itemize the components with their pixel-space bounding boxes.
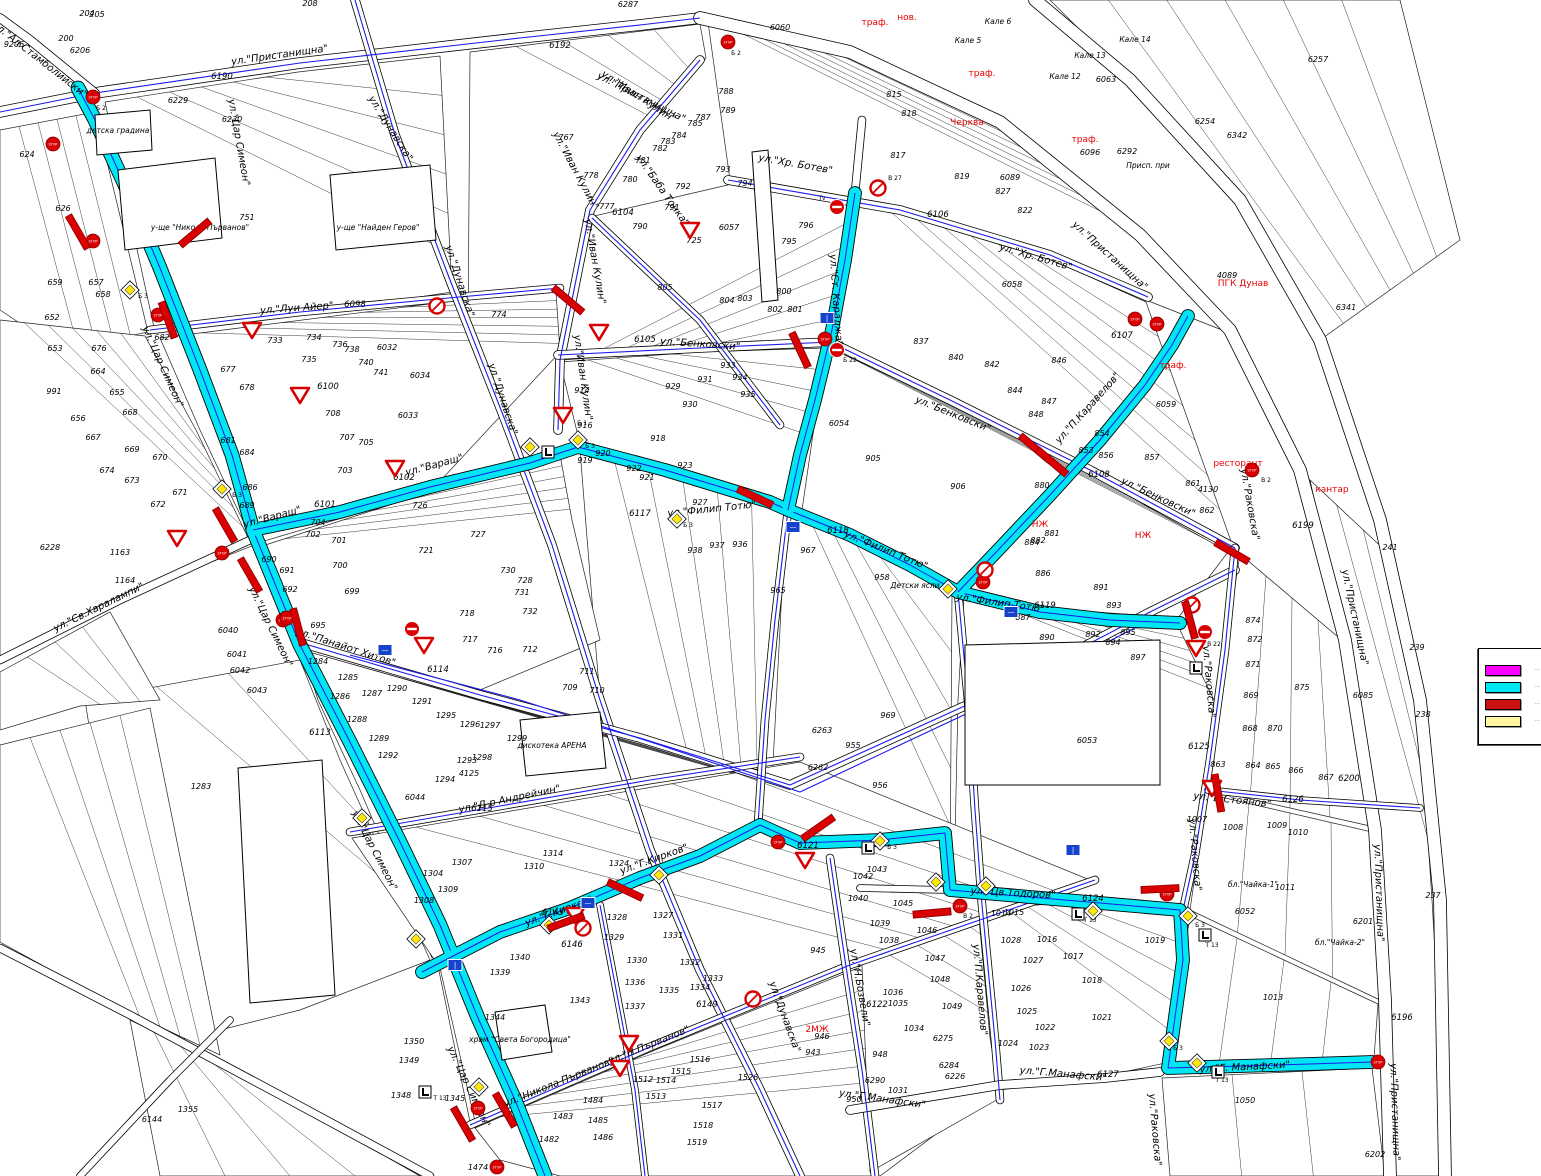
parcel-number: 784 — [671, 131, 686, 140]
parcel-number: 948 — [872, 1050, 887, 1059]
parcel-number: 822 — [1017, 206, 1032, 215]
stop-sign-part: STOP — [493, 1165, 502, 1169]
parcel-number: 1289 — [369, 734, 389, 743]
parcel-number: 1337 — [625, 1002, 646, 1011]
parcel-number: 708 — [325, 409, 340, 418]
parcel-number: 817 — [890, 151, 906, 160]
parcel-number: 1483 — [553, 1112, 573, 1121]
parcel-number: 1021 — [1092, 1013, 1112, 1022]
sign-code-label: В 22 — [1207, 641, 1221, 648]
parcel-number: 1513 — [646, 1092, 666, 1101]
parcel-number: 1016 — [1037, 935, 1057, 944]
parcel-number: 790 — [632, 222, 647, 231]
parcel-number: 891 — [1093, 583, 1108, 592]
parcel-number: 1048 — [930, 975, 950, 984]
stop-sign-icon: STOP — [86, 90, 100, 104]
poi-label-red: НЖ — [1135, 531, 1152, 541]
sign-code-label: Б 3 — [138, 293, 148, 300]
parcel-number: 1010 — [1288, 828, 1308, 837]
parcel-number: 969 — [880, 711, 895, 720]
place-label: Присп. при — [1126, 161, 1170, 170]
parcel-number: 711 — [579, 667, 594, 676]
parcel-number: 6053 — [1077, 736, 1097, 745]
parcel-number: 1008 — [1223, 823, 1243, 832]
parcel-number: 853 — [1078, 446, 1093, 455]
road-code: 6200 — [1338, 774, 1360, 784]
noentry-sign-icon — [830, 343, 845, 358]
parcel-number: 788 — [718, 87, 733, 96]
parcel-number: 1512 — [633, 1075, 653, 1084]
t13-sign-icon — [1212, 1066, 1224, 1078]
parcel-number: 1485 — [588, 1116, 608, 1125]
street-name-label: ул."Раковска" — [1238, 467, 1262, 541]
parcel-number: 865 — [1265, 762, 1280, 771]
parcel-number: 1022 — [1035, 1023, 1055, 1032]
road-code: 6199 — [1292, 521, 1314, 531]
parcel-number: 678 — [239, 383, 254, 392]
parcel-number: 751 — [239, 213, 254, 222]
road-code: 6125 — [1188, 742, 1210, 752]
parcel-number: 793 — [715, 165, 730, 174]
city-block — [982, 902, 1180, 1090]
parcel-number: 787 — [695, 113, 711, 122]
red-marker-swatch — [1485, 699, 1521, 710]
parcel-number: 874 — [1245, 616, 1260, 625]
parcel-number: 673 — [124, 476, 139, 485]
bluesign-sign-icon: | — [1066, 845, 1080, 856]
parcel-number: 803 — [737, 294, 752, 303]
parcel-number: 1034 — [904, 1024, 924, 1033]
parcel-number: 1288 — [347, 715, 367, 724]
noentry-sign-icon — [830, 200, 845, 215]
parcel-number: 699 — [344, 587, 359, 596]
parcel-number: 945 — [810, 946, 825, 955]
parcel-number: 792 — [675, 182, 690, 191]
parcel-number: 6206 — [70, 46, 90, 55]
parcel-number: 1290 — [387, 684, 407, 693]
parcel-number: 827 — [995, 187, 1011, 196]
stop-sign-part: STOP — [89, 95, 98, 99]
parcel-number: 857 — [1144, 453, 1160, 462]
city-block — [130, 1020, 420, 1176]
parcel-number: 238 — [1415, 710, 1430, 719]
parcel-number: 905 — [865, 454, 880, 463]
stop-sign-part: STOP — [49, 142, 58, 146]
poi-label-red: нов. — [897, 13, 917, 23]
parcel-number: 1047 — [925, 954, 946, 963]
parcel-number: 856 — [1098, 451, 1113, 460]
parcel-number: 1039 — [870, 919, 890, 928]
t13-sign-part — [419, 1086, 431, 1098]
road-code: 6117 — [629, 509, 651, 519]
parcel-number: 658 — [95, 290, 110, 299]
sign-code-label: Б 3 — [1173, 1045, 1183, 1052]
parcel-number: 1329 — [604, 933, 624, 942]
parcel-number: 794 — [737, 179, 752, 188]
parcel-number: 1330 — [627, 956, 647, 965]
parcel-number: 1482 — [539, 1135, 559, 1144]
parcel-number: 668 — [122, 408, 137, 417]
parcel-number: 6226 — [945, 1072, 965, 1081]
parcel-number: 241 — [1382, 543, 1397, 552]
parcel-number: 802 — [767, 305, 782, 314]
parcel-number: 1314 — [543, 849, 563, 858]
t13-sign-part — [1072, 908, 1084, 920]
road-code: 6126 — [1282, 795, 1304, 805]
parcel-number: 1332 — [680, 958, 700, 967]
parcel-number: 6057 — [719, 223, 740, 232]
map-legend: ·· ···· ····· ··············· ··········… — [1478, 648, 1541, 745]
nostop-sign-icon — [746, 992, 761, 1007]
parcel-number: 6042 — [230, 666, 250, 675]
parcel-number: 653 — [47, 344, 62, 353]
legend-item-label: ············· — [1535, 667, 1541, 674]
parcel-number: 846 — [1051, 356, 1066, 365]
parcel-number: 702 — [305, 530, 320, 539]
t13-sign-icon — [862, 842, 874, 854]
stop-sign-icon: STOP — [1245, 463, 1259, 477]
parcel-number: 930 — [682, 400, 697, 409]
parcel-number: 1308 — [414, 896, 434, 905]
parcel-number: 667 — [85, 433, 101, 442]
parcel-number: 656 — [70, 414, 85, 423]
bluesign-sign-part: — — [790, 524, 797, 532]
parcel-number: 923 — [677, 461, 692, 470]
parcel-number: 1343 — [570, 996, 590, 1005]
stop-sign-part: STOP — [1153, 322, 1162, 326]
parcel-number: 741 — [373, 368, 388, 377]
place-label: Кале 12 — [1049, 72, 1080, 81]
parcel-number: 1042 — [853, 872, 873, 881]
parcel-number: 1045 — [893, 899, 913, 908]
parcel-number: 705 — [358, 438, 373, 447]
sign-code-label: Т 13 — [432, 1095, 446, 1102]
bluesign-sign-part: — — [382, 647, 389, 655]
parcel-number: 862 — [1199, 506, 1214, 515]
parcel-number: 200 — [58, 34, 73, 43]
parcel-number: 815 — [886, 90, 901, 99]
parcel-number: 208 — [302, 0, 317, 8]
parcel-number: 897 — [1130, 653, 1146, 662]
parcel-number: 6085 — [1353, 691, 1373, 700]
stop-sign-icon: STOP — [215, 546, 229, 560]
map-sheet: 9206200620620420520862306229751624626659… — [0, 0, 1541, 1176]
t13-sign-part — [1199, 929, 1211, 941]
sign-code-label: Б 3 — [887, 844, 897, 851]
parcel-number: 848 — [1028, 410, 1043, 419]
parcel-number: 1025 — [1017, 1007, 1037, 1016]
t13-sign-icon — [1190, 662, 1202, 674]
legend-rows: ··············· ·········· ········· ···… — [1485, 662, 1541, 730]
nostop-sign-icon — [430, 299, 445, 314]
parcel-number: 1046 — [917, 926, 937, 935]
parcel-number: 1283 — [191, 782, 211, 791]
sign-code-label: Б 3 — [232, 492, 242, 499]
parcel-number: 6052 — [1235, 907, 1255, 916]
parcel-number: 965 — [770, 586, 785, 595]
parcel-number: 895 — [1120, 628, 1135, 637]
road-code: 6121 — [797, 841, 819, 851]
parcel-number: 943 — [805, 1048, 820, 1057]
parcel-number: 735 — [301, 355, 316, 364]
place-label: у-ще "Найден Геров" — [336, 223, 420, 232]
parcel-number: 6044 — [405, 793, 425, 802]
parcel-number: 6063 — [1096, 75, 1116, 84]
t13-sign-icon — [1072, 908, 1084, 920]
parcel-number: 875 — [1294, 683, 1309, 692]
parcel-number: 1344 — [485, 1013, 505, 1022]
parcel-number: 1486 — [593, 1133, 613, 1142]
parcel-number: 740 — [358, 358, 373, 367]
magenta-route-swatch — [1485, 665, 1521, 676]
stop-sign-part: STOP — [979, 580, 988, 584]
place-label: бл."Чайка-2" — [1315, 938, 1365, 947]
parcel-number: 818 — [901, 109, 916, 118]
bluesign-sign-icon: — — [786, 522, 800, 533]
t13-sign-part — [1190, 662, 1202, 674]
parcel-number: 6043 — [247, 686, 267, 695]
stop-sign-part: STOP — [774, 840, 783, 844]
parcel-number: 692 — [282, 585, 297, 594]
parcel-number: 880 — [1034, 481, 1049, 490]
parcel-number: 1526 — [738, 1073, 758, 1082]
bluesign-sign-part: — — [585, 900, 592, 908]
parcel-number: 1035 — [888, 999, 908, 1008]
noentry-sign-icon — [405, 622, 420, 637]
legend-item-label: ·· ········ — [1535, 684, 1541, 691]
parcel-number: 840 — [948, 353, 963, 362]
parcel-number: 1336 — [625, 978, 645, 987]
parcel-number: 931 — [697, 375, 712, 384]
parcel-number: 1519 — [687, 1138, 707, 1147]
parcel-number: 717 — [462, 635, 478, 644]
place-label: детска градина — [86, 126, 150, 135]
parcel-number: 867 — [1318, 773, 1334, 782]
legend-item-magenta-route: ············· — [1485, 662, 1541, 679]
parcel-number: 670 — [152, 453, 167, 462]
parcel-number: 936 — [732, 540, 747, 549]
parcel-number: 730 — [500, 566, 515, 575]
parcel-number: 1284 — [308, 657, 328, 666]
parcel-number: 726 — [412, 501, 427, 510]
parcel-number: 819 — [954, 172, 969, 181]
parcel-number: 626 — [55, 204, 70, 213]
parcel-number: 800 — [776, 287, 791, 296]
parcel-number: 6342 — [1227, 131, 1247, 140]
parcel-number: 1013 — [1263, 993, 1283, 1002]
parcel-number: 674 — [99, 466, 114, 475]
stop-sign-icon: STOP — [1371, 1055, 1385, 1069]
parcel-number: 734 — [306, 333, 321, 342]
road-code: 6146 — [561, 940, 583, 950]
place-label: дискотека АРЕНА — [517, 741, 587, 750]
parcel-number: 6096 — [1080, 148, 1100, 157]
road-code: 6107 — [1111, 331, 1133, 341]
parcel-number: 6341 — [1336, 303, 1356, 312]
legend-item-red-marker: ·· ······· — [1485, 696, 1541, 713]
parcel-number: 1028 — [1001, 936, 1021, 945]
parcel-number: 681 — [220, 436, 235, 445]
stop-sign-part: STOP — [474, 1106, 483, 1110]
parcel-number: 1328 — [607, 913, 627, 922]
t13-sign-part — [862, 842, 874, 854]
stop-sign-part: STOP — [218, 551, 227, 555]
parcel-number: 671 — [172, 488, 187, 497]
place-label: Кале 5 — [955, 36, 982, 45]
parcel-number: 837 — [913, 337, 929, 346]
parcel-number: 716 — [487, 646, 502, 655]
sign-code-label: В 27 — [888, 175, 902, 182]
stop-sign-icon: STOP — [818, 332, 832, 346]
stop-sign-icon: STOP — [46, 137, 60, 151]
parcel-number: 933 — [720, 361, 735, 370]
parcel-number: 886 — [1035, 569, 1050, 578]
parcel-number: 684 — [239, 448, 254, 457]
parcel-number: 6228 — [40, 543, 60, 552]
parcel-number: 929 — [665, 382, 680, 391]
yellow-marker-swatch — [1485, 716, 1521, 727]
parcel-number: 652 — [44, 313, 59, 322]
stop-sign-part: STOP — [154, 313, 163, 317]
parcel-number: 655 — [109, 388, 124, 397]
stop-sign-icon: STOP — [471, 1101, 485, 1115]
parcel-number: 1514 — [656, 1076, 676, 1085]
parcel-number: 6202 — [1365, 1150, 1385, 1159]
priority-sign-icon — [521, 438, 539, 456]
parcel-number: 870 — [1267, 724, 1282, 733]
poi-label-red: траф. — [861, 18, 888, 28]
stop-sign-part: STOP — [89, 239, 98, 243]
building — [118, 158, 222, 250]
stop-sign-part: STOP — [724, 40, 733, 44]
t13-sign-icon — [419, 1086, 431, 1098]
parcel-number: 884 — [1024, 538, 1039, 547]
parcel-number: 686 — [242, 483, 257, 492]
parcel-number: 1296 — [460, 720, 480, 729]
parcel-number: 239 — [1409, 643, 1424, 652]
parcel-number: 1164 — [115, 576, 135, 585]
parcel-number: 695 — [310, 621, 325, 630]
cyan-route-swatch — [1485, 682, 1521, 693]
parcel-number: 1015 — [1004, 908, 1024, 917]
sign-code-label: Т 13 — [1204, 942, 1218, 949]
parcel-number: 731 — [514, 588, 529, 597]
parcel-number: 1309 — [438, 885, 458, 894]
parcel-number: 1038 — [879, 936, 899, 945]
parcel-number: 1049 — [942, 1002, 962, 1011]
parcel-number: 1345 — [445, 1094, 465, 1103]
parcel-number: 1327 — [653, 911, 674, 920]
parcel-number: 906 — [950, 482, 965, 491]
nostop-sign-icon — [871, 181, 886, 196]
parcel-number: 6058 — [1002, 280, 1022, 289]
parcel-number: 967 — [800, 546, 816, 555]
parcel-number: 919 — [577, 456, 592, 465]
road-code: 6114 — [427, 665, 449, 675]
parcel-number: 6060 — [770, 23, 790, 32]
parcel-number: 842 — [984, 360, 999, 369]
road-code: 6105 — [634, 335, 656, 345]
road-code: 6098 — [344, 300, 366, 310]
parcel-number: 1310 — [524, 862, 544, 871]
poi-label-red: Черква — [950, 118, 984, 128]
parcel-number: 1018 — [1082, 976, 1102, 985]
sign-code-label: Б 2 — [96, 105, 106, 112]
sign-code-label: Б 3 — [683, 522, 693, 529]
stop-sign-part: STOP — [1131, 317, 1140, 321]
parcel-number: 237 — [1425, 891, 1441, 900]
parcel-number: 918 — [650, 434, 665, 443]
stop-sign-icon: STOP — [1128, 312, 1142, 326]
parcel-number: 6275 — [933, 1034, 953, 1043]
nostop-sign-icon — [978, 563, 993, 578]
noentry-sign-part — [1200, 631, 1210, 633]
parcel-number: 1163 — [110, 548, 130, 557]
parcel-number: 1287 — [362, 689, 383, 698]
parcel-number: 1350 — [404, 1037, 424, 1046]
parcel-number: 1024 — [998, 1039, 1018, 1048]
parcel-number: 801 — [787, 305, 802, 314]
stop-sign-icon: STOP — [721, 35, 735, 49]
road-code: 6106 — [927, 210, 949, 220]
stop-sign-part: STOP — [1248, 468, 1257, 472]
parcel-number: 892 — [1085, 630, 1100, 639]
parcel-number: 871 — [1245, 660, 1260, 669]
parcel-number: 6290 — [865, 1076, 885, 1085]
stop-sign-part: STOP — [283, 616, 292, 620]
parcel-number: 1291 — [412, 697, 432, 706]
parcel-number: 956 — [872, 781, 887, 790]
parcel-number: 1335 — [659, 986, 679, 995]
parcel-number: 712 — [522, 645, 537, 654]
parcel-number: 672 — [150, 500, 165, 509]
parcel-number: 780 — [622, 175, 637, 184]
poi-label-red: траф. — [968, 69, 995, 79]
parcel-number: 727 — [470, 530, 486, 539]
sign-code-label: Б 3 — [585, 443, 595, 450]
stop-sign-icon: STOP — [1150, 317, 1164, 331]
sign-code-label: Тv — [817, 195, 826, 202]
poi-label-red: траф. — [1071, 135, 1098, 145]
parcel-number: 6229 — [168, 96, 188, 105]
bluesign-sign-icon: | — [820, 313, 834, 324]
sign-code-label: В 2 — [963, 913, 973, 920]
parcel-number: 893 — [1106, 601, 1121, 610]
parcel-number: 6034 — [410, 371, 430, 380]
bluesign-sign-icon: — — [581, 898, 595, 909]
bluesign-sign-part: | — [826, 315, 828, 323]
parcel-number: 868 — [1242, 724, 1257, 733]
parcel-number: 789 — [720, 106, 735, 115]
t13-sign-icon — [1199, 929, 1211, 941]
parcel-number: 690 — [261, 555, 276, 564]
parcel-number: 795 — [781, 237, 796, 246]
legend-item-label: ·· ··· ···· — [1535, 718, 1541, 725]
parcel-number: 920 — [595, 449, 610, 458]
parcel-number: 1340 — [510, 953, 530, 962]
stop-sign-icon: STOP — [490, 1160, 504, 1174]
parcel-number: 6262 — [808, 763, 828, 772]
bump-sign-part — [1141, 885, 1179, 894]
poi-label-red: 2МЖ — [805, 1025, 828, 1035]
parcel-number: 1292 — [378, 751, 398, 760]
road-code: 6192 — [549, 41, 571, 51]
parcel-number: 700 — [332, 561, 347, 570]
parcel-number: 707 — [339, 433, 355, 442]
parcel-number: 669 — [124, 445, 139, 454]
bluesign-sign-icon: — — [1004, 607, 1018, 618]
city-block — [1162, 1068, 1385, 1176]
